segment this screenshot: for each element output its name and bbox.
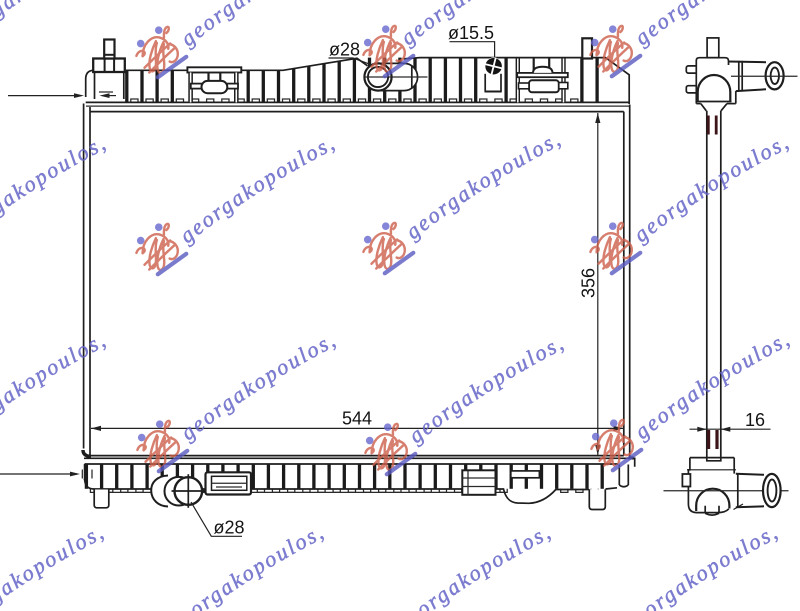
svg-text:georgakopoulos,: georgakopoulos, xyxy=(401,125,566,244)
svg-text:ø28: ø28 xyxy=(329,40,360,60)
svg-text:georgakopoulos,: georgakopoulos, xyxy=(0,129,111,248)
svg-text:georgakopoulos,: georgakopoulos, xyxy=(176,0,341,51)
svg-text:georgakopoulos,: georgakopoulos, xyxy=(0,326,111,445)
svg-text:georgakopoulos,: georgakopoulos, xyxy=(404,329,569,448)
svg-text:georgakopoulos,: georgakopoulos, xyxy=(175,129,340,248)
svg-text:georgakopoulos,: georgakopoulos, xyxy=(0,0,111,51)
svg-text:16: 16 xyxy=(745,410,765,430)
svg-text:georgakopoulos,: georgakopoulos, xyxy=(164,518,329,611)
svg-text:ø28: ø28 xyxy=(214,518,245,538)
svg-text:544: 544 xyxy=(342,409,372,429)
svg-text:georgakopoulos,: georgakopoulos, xyxy=(618,518,783,611)
svg-text:356: 356 xyxy=(579,268,599,298)
svg-text:georgakopoulos,: georgakopoulos, xyxy=(391,518,556,611)
svg-text:georgakopoulos,: georgakopoulos, xyxy=(0,518,109,611)
svg-text:georgakopoulos,: georgakopoulos, xyxy=(629,128,794,247)
svg-text:georgakopoulos,: georgakopoulos, xyxy=(630,325,795,444)
svg-text:georgakopoulos,: georgakopoulos, xyxy=(176,326,341,445)
svg-text:ø15.5: ø15.5 xyxy=(448,23,494,43)
